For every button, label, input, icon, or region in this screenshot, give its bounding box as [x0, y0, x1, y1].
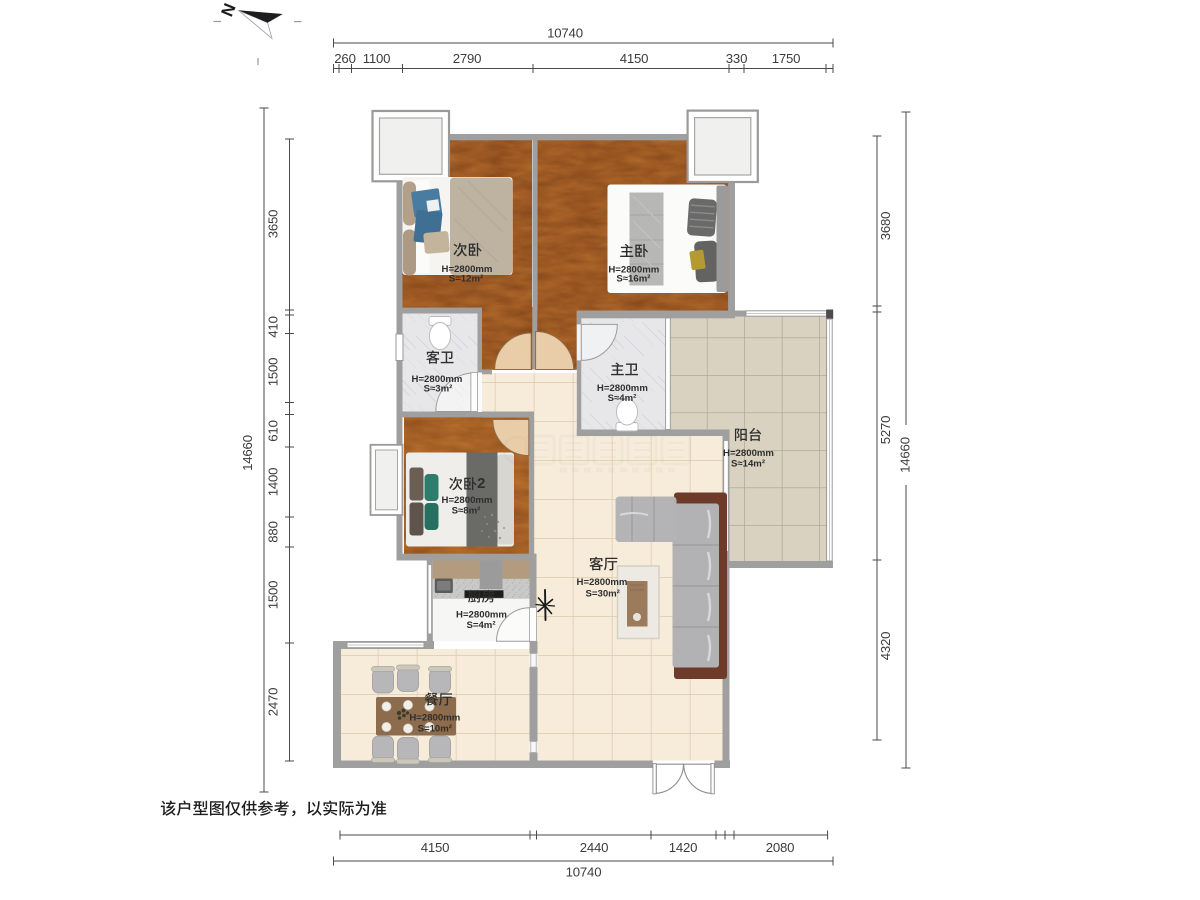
svg-text:2440: 2440: [580, 840, 609, 855]
svg-text:410: 410: [266, 316, 281, 337]
svg-text:14660: 14660: [898, 437, 913, 473]
svg-text:S=12m²: S=12m²: [449, 274, 483, 285]
svg-text:10740: 10740: [566, 865, 602, 880]
svg-text:S≈3m²: S≈3m²: [424, 383, 453, 394]
svg-text:14660: 14660: [240, 435, 255, 471]
svg-text:2470: 2470: [266, 688, 281, 717]
svg-text:H=2800mm: H=2800mm: [409, 713, 460, 724]
svg-text:1500: 1500: [266, 358, 281, 387]
svg-text:1500: 1500: [266, 581, 281, 610]
svg-text:330: 330: [726, 51, 747, 66]
svg-text:S=30m²: S=30m²: [585, 588, 619, 599]
svg-text:5270: 5270: [878, 416, 893, 445]
svg-text:S=4m²: S=4m²: [466, 620, 495, 631]
svg-text:N: N: [217, 1, 239, 20]
svg-text:4150: 4150: [620, 51, 649, 66]
svg-text:10740: 10740: [547, 26, 583, 41]
svg-text:2080: 2080: [766, 840, 795, 855]
svg-text:H=2800mm: H=2800mm: [456, 610, 507, 621]
svg-text:3680: 3680: [878, 212, 893, 241]
svg-text:S≈14m²: S≈14m²: [731, 459, 765, 470]
svg-text:1420: 1420: [669, 840, 698, 855]
svg-text:H=2800mm: H=2800mm: [723, 448, 774, 459]
svg-text:S≈4m²: S≈4m²: [608, 393, 637, 404]
svg-text:3650: 3650: [266, 210, 281, 239]
svg-text:1750: 1750: [772, 51, 801, 66]
svg-text:2790: 2790: [453, 51, 482, 66]
svg-text:260: 260: [334, 51, 355, 66]
svg-text:S=10m²: S=10m²: [418, 724, 452, 735]
svg-text:1400: 1400: [266, 468, 281, 497]
svg-text:1100: 1100: [363, 51, 391, 66]
svg-text:610: 610: [266, 420, 281, 441]
svg-text:2: 2: [477, 476, 485, 492]
svg-text:S≈8m²: S≈8m²: [452, 506, 481, 517]
svg-text:S≈16m²: S≈16m²: [616, 274, 650, 285]
svg-text:4150: 4150: [421, 840, 450, 855]
svg-text:880: 880: [266, 521, 281, 542]
svg-text:H=2800mm: H=2800mm: [577, 577, 628, 588]
svg-text:4320: 4320: [878, 632, 893, 661]
svg-text:H=2800mm: H=2800mm: [442, 495, 493, 506]
